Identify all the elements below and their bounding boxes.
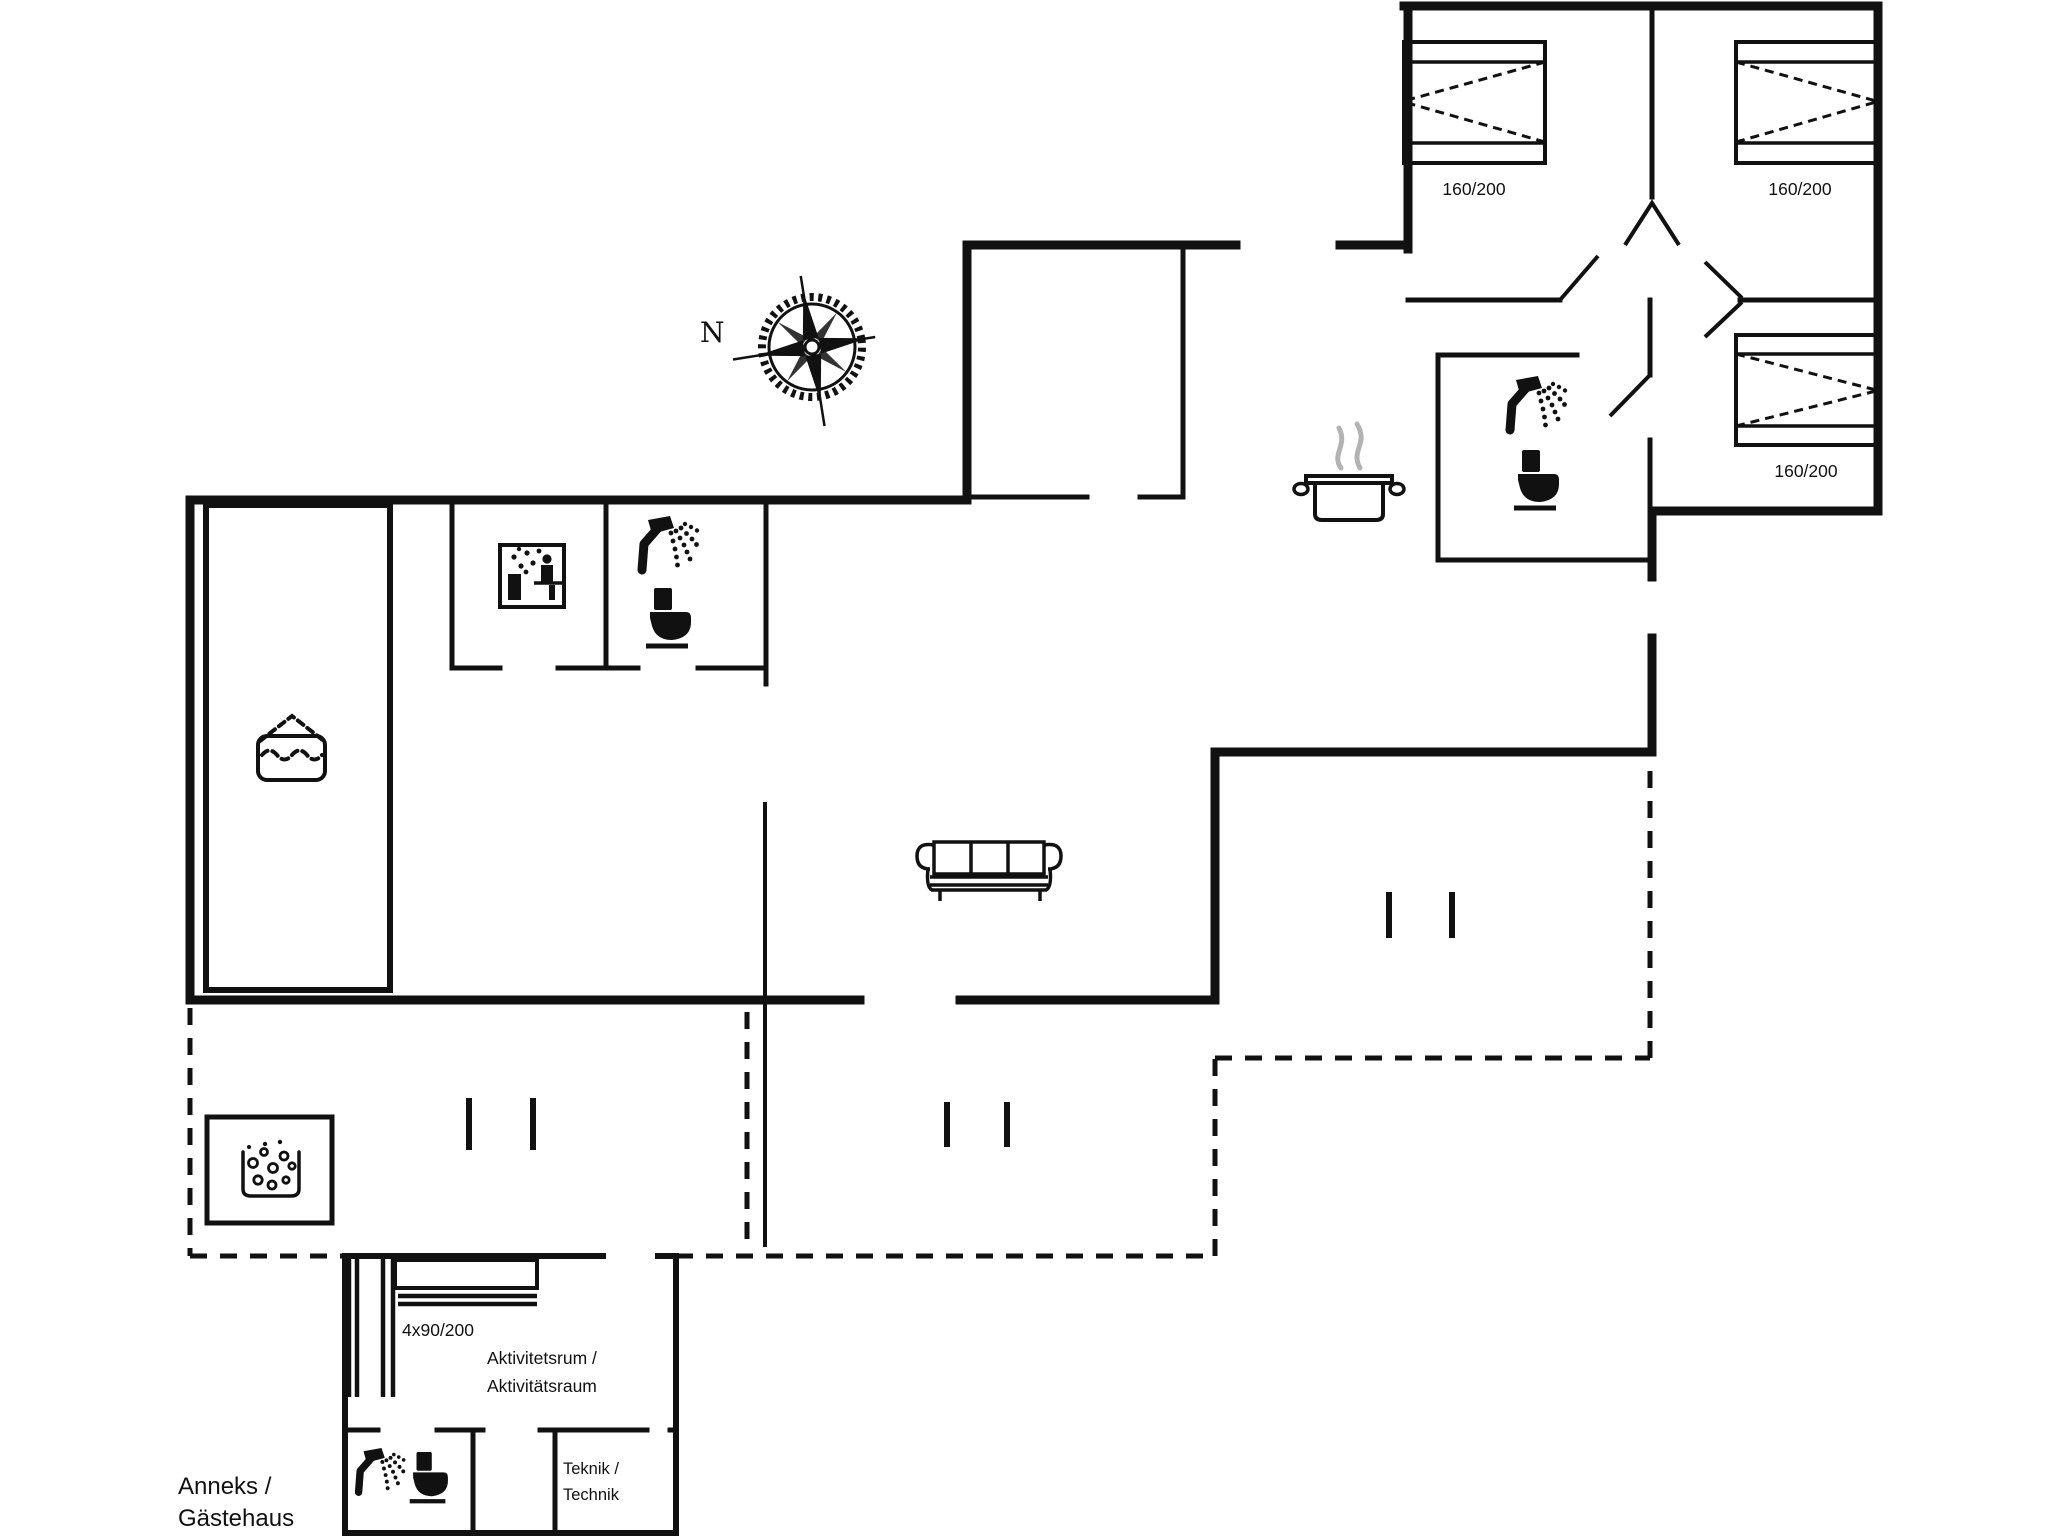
sauna-icon — [500, 545, 564, 607]
activity-room-label-line1: Aktivitetsrum / — [487, 1348, 597, 1368]
main-bathroom-toilet-icon — [1514, 450, 1559, 508]
bunk-bed-size-label: 4x90/200 — [402, 1320, 474, 1340]
annex-label-line1: Anneks / — [178, 1473, 272, 1500]
floor-plan-page: N 160/200 160/200 160/200 — [0, 0, 2048, 1536]
main-house-exterior-walls — [190, 6, 1878, 1000]
technic-room-label-line2: Technik — [563, 1486, 620, 1504]
activity-room-label-line2: Aktivitätsraum — [487, 1376, 597, 1396]
floor-plan-drawing: N 160/200 160/200 160/200 — [0, 0, 2048, 1536]
bedroom2-bed-size-label: 160/200 — [1768, 179, 1832, 199]
bedroom2-bed — [1736, 42, 1877, 163]
interior-walls — [206, 6, 1878, 1245]
hot-tub-icon — [207, 1117, 332, 1223]
terrace-dashed-boundaries — [190, 760, 1650, 1256]
compass-rose-icon — [722, 266, 888, 439]
compass-north-label: N — [700, 316, 725, 349]
annex-label-line2: Gästehaus — [178, 1505, 294, 1532]
annex-toilet-icon — [410, 1452, 448, 1501]
annex-shower-icon — [359, 1448, 406, 1492]
technic-room-label-line1: Teknik / — [563, 1460, 619, 1478]
bedroom3-bed — [1736, 335, 1877, 445]
left-bathroom-shower-icon — [642, 516, 699, 570]
left-bathroom-toilet-icon — [646, 588, 691, 646]
bedroom1-bed — [1404, 42, 1545, 163]
pool-room-walls — [206, 505, 390, 990]
opening-tick-marks — [469, 892, 1452, 1150]
sofa-icon — [917, 842, 1061, 901]
swimming-pool-icon — [258, 716, 325, 780]
cooking-pot-icon — [1294, 424, 1404, 520]
bedroom1-bed-size-label: 160/200 — [1442, 179, 1506, 199]
bedroom3-bed-size-label: 160/200 — [1774, 461, 1838, 481]
main-bathroom-shower-icon — [1510, 376, 1567, 430]
